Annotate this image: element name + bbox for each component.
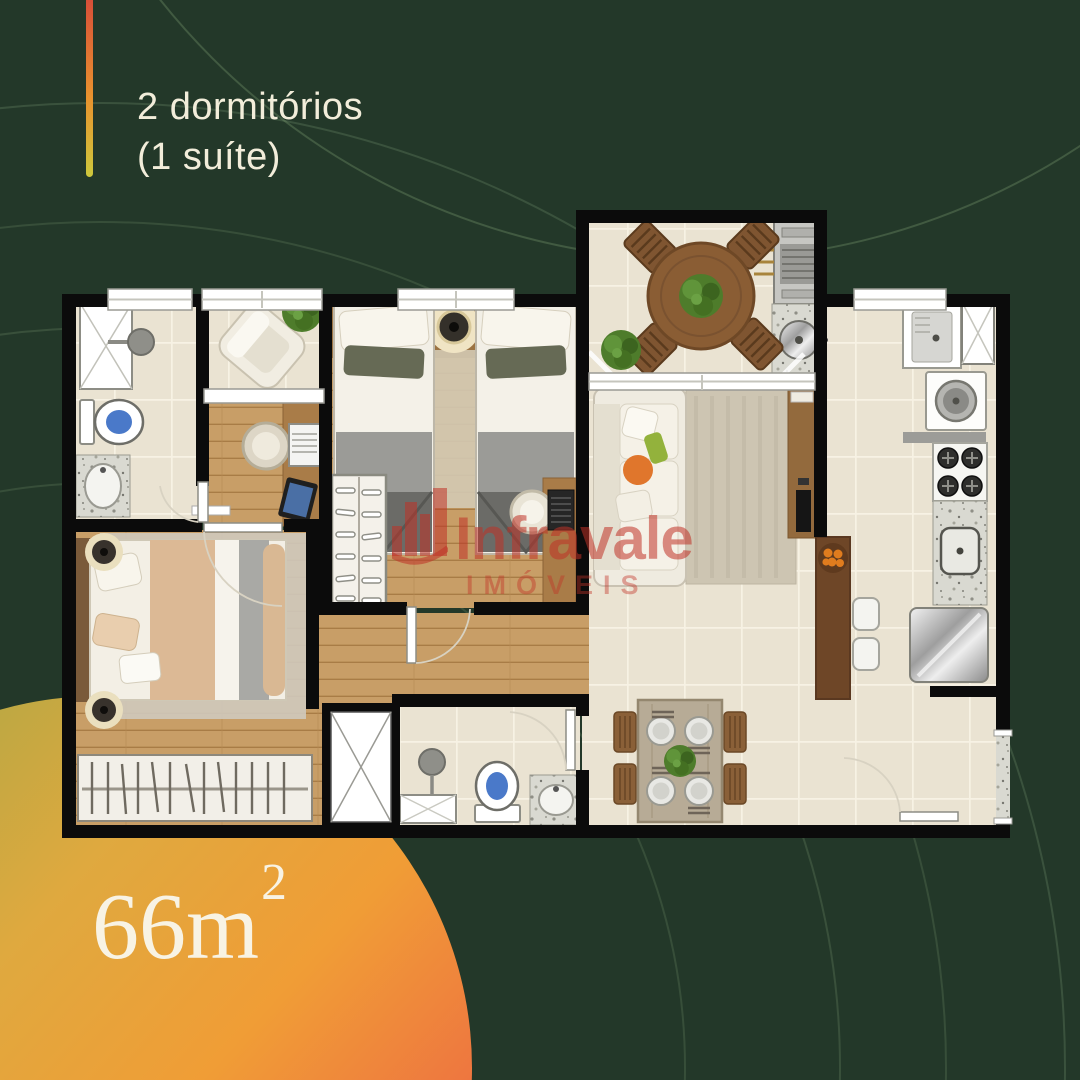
kitchen-sink: [933, 501, 987, 605]
stool: [853, 598, 879, 630]
fridge-icon: [910, 608, 988, 682]
laundry-sink: [903, 306, 961, 368]
door-leaf: [900, 812, 958, 821]
vanity-cabinet: [400, 795, 456, 823]
wardrobe: [332, 475, 386, 613]
stool: [853, 638, 879, 670]
stove-icon: [933, 443, 987, 501]
place-setting-icon: [647, 717, 675, 745]
door-leaf: [566, 710, 575, 770]
window-granite-sill: [994, 730, 1012, 824]
place-setting-icon: [647, 777, 675, 805]
washing-machine-icon: [926, 372, 986, 430]
sofa: [594, 388, 686, 586]
counter-divider: [903, 432, 986, 443]
desk-chair-icon: [243, 423, 289, 469]
living-rug: [686, 390, 796, 584]
shaft-closet: [322, 703, 400, 831]
plant-icon: [601, 330, 641, 370]
desk-chair-icon: [511, 491, 553, 533]
dining-chair: [724, 764, 746, 804]
suite-closet-rack: [78, 755, 312, 821]
door-leaf: [407, 607, 416, 663]
tv-icon: [796, 490, 811, 532]
suite-headboard: [76, 538, 90, 702]
plant-icon: [679, 274, 723, 318]
laptop-icon: [289, 424, 320, 466]
dining-chair: [614, 712, 636, 752]
dining-chair: [614, 764, 636, 804]
master-suite: [76, 533, 312, 821]
floor-plan: [0, 0, 1080, 1080]
toilet-icon: [80, 400, 143, 444]
laptop-icon: [548, 490, 574, 530]
bedside-lamp-icon: [85, 533, 123, 571]
pillow-icon: [623, 455, 653, 485]
place-setting-icon: [685, 777, 713, 805]
place-setting-icon: [685, 717, 713, 745]
bedside-lamp-icon: [85, 691, 123, 729]
bathroom-sink: [76, 455, 130, 517]
door-leaf: [204, 523, 282, 532]
suite-double-bed: [90, 540, 286, 700]
tall-cabinet: [962, 302, 994, 364]
tv-panel: [788, 388, 816, 538]
centerpiece-plant-icon: [664, 745, 696, 777]
shower-box: [80, 303, 132, 389]
door-leaf: [198, 482, 208, 522]
toilet-icon: [475, 762, 520, 822]
dining-chair: [724, 712, 746, 752]
poster-canvas: 2 dormitórios (1 suíte) 66m2: [0, 0, 1080, 1080]
bathroom-sink: [530, 775, 580, 825]
